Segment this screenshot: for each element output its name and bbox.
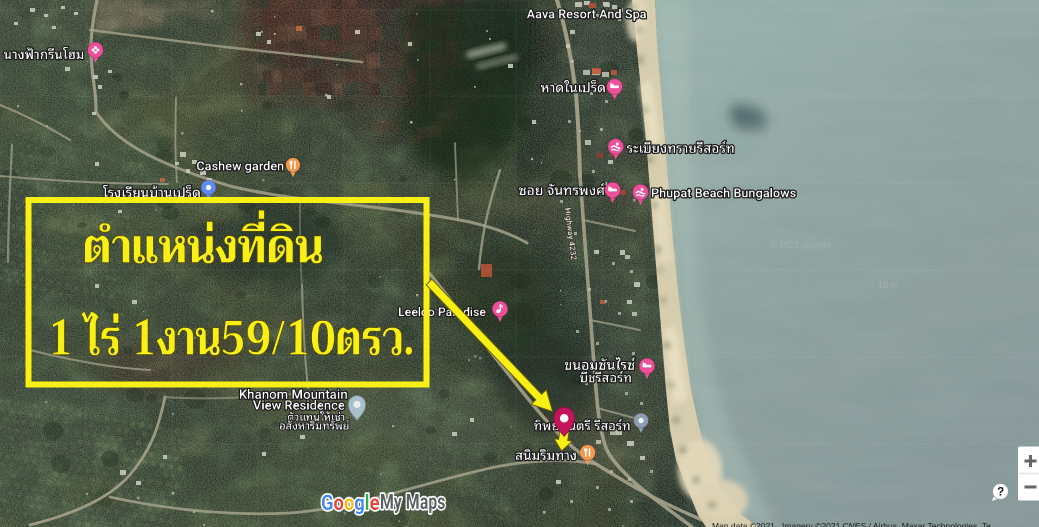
svg-text:10 m: 10 m: [878, 280, 898, 290]
svg-text:© 2021 Google: © 2021 Google: [770, 240, 831, 250]
svg-text:?: ?: [997, 487, 1004, 499]
svg-text:Map data ©2021 Imagery ©2021: Map data ©2021 Imagery ©2021 CNES / Airb…: [712, 521, 991, 527]
